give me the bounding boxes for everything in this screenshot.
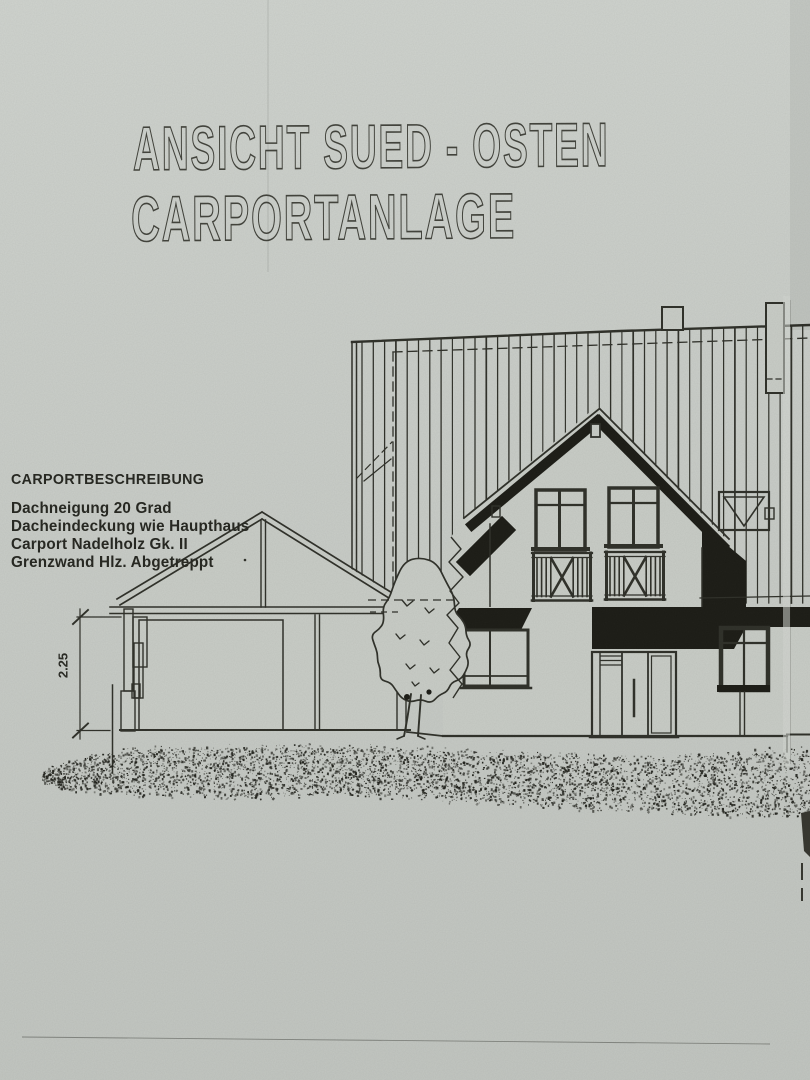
window-sill-dark bbox=[717, 685, 770, 692]
description-line: Grenzwand Hlz. Abgetreppt bbox=[11, 554, 249, 572]
apex-pendant bbox=[591, 424, 600, 437]
diagonal-mark bbox=[364, 459, 391, 481]
leaf-clump-dark bbox=[404, 694, 410, 700]
dimension-height bbox=[73, 609, 121, 773]
carport-description-block: CARPORTBESCHREIBUNG Dachneigung 20 Grad … bbox=[11, 471, 249, 572]
description-line: Carport Nadelholz Gk. II bbox=[11, 536, 249, 554]
paper-edge-dark-mark bbox=[801, 811, 810, 857]
drawing-title-line2: CARPORTANLAGE bbox=[131, 179, 516, 256]
roof-left-edge bbox=[352, 342, 357, 600]
leaf-clump-dark bbox=[426, 689, 431, 694]
fold-highlight bbox=[783, 296, 790, 766]
description-line: Dachneigung 20 Grad bbox=[11, 500, 249, 518]
chimney-small bbox=[662, 307, 683, 330]
dimension-label: 2.25 bbox=[56, 649, 71, 683]
crease-horizontal bbox=[22, 1037, 770, 1044]
scanned-architectural-drawing: ANSICHT SUED - OSTEN CARPORTANLAGE CARPO… bbox=[0, 0, 810, 1080]
ground-line-gap bbox=[407, 732, 443, 736]
ground-floor bbox=[407, 607, 810, 752]
drawing-title-line1: ANSICHT SUED - OSTEN bbox=[133, 110, 609, 185]
fold-shadow-top-right bbox=[790, 0, 810, 330]
ground-hatch-stipple bbox=[42, 743, 810, 819]
description-heading: CARPORTBESCHREIBUNG bbox=[11, 471, 249, 488]
trunk-root-flare bbox=[397, 736, 425, 739]
hidden-edge-dashed-horizontal bbox=[393, 338, 810, 352]
roof-ridge-line bbox=[352, 325, 810, 342]
description-line: Dacheindeckung wie Haupthaus bbox=[11, 518, 249, 536]
